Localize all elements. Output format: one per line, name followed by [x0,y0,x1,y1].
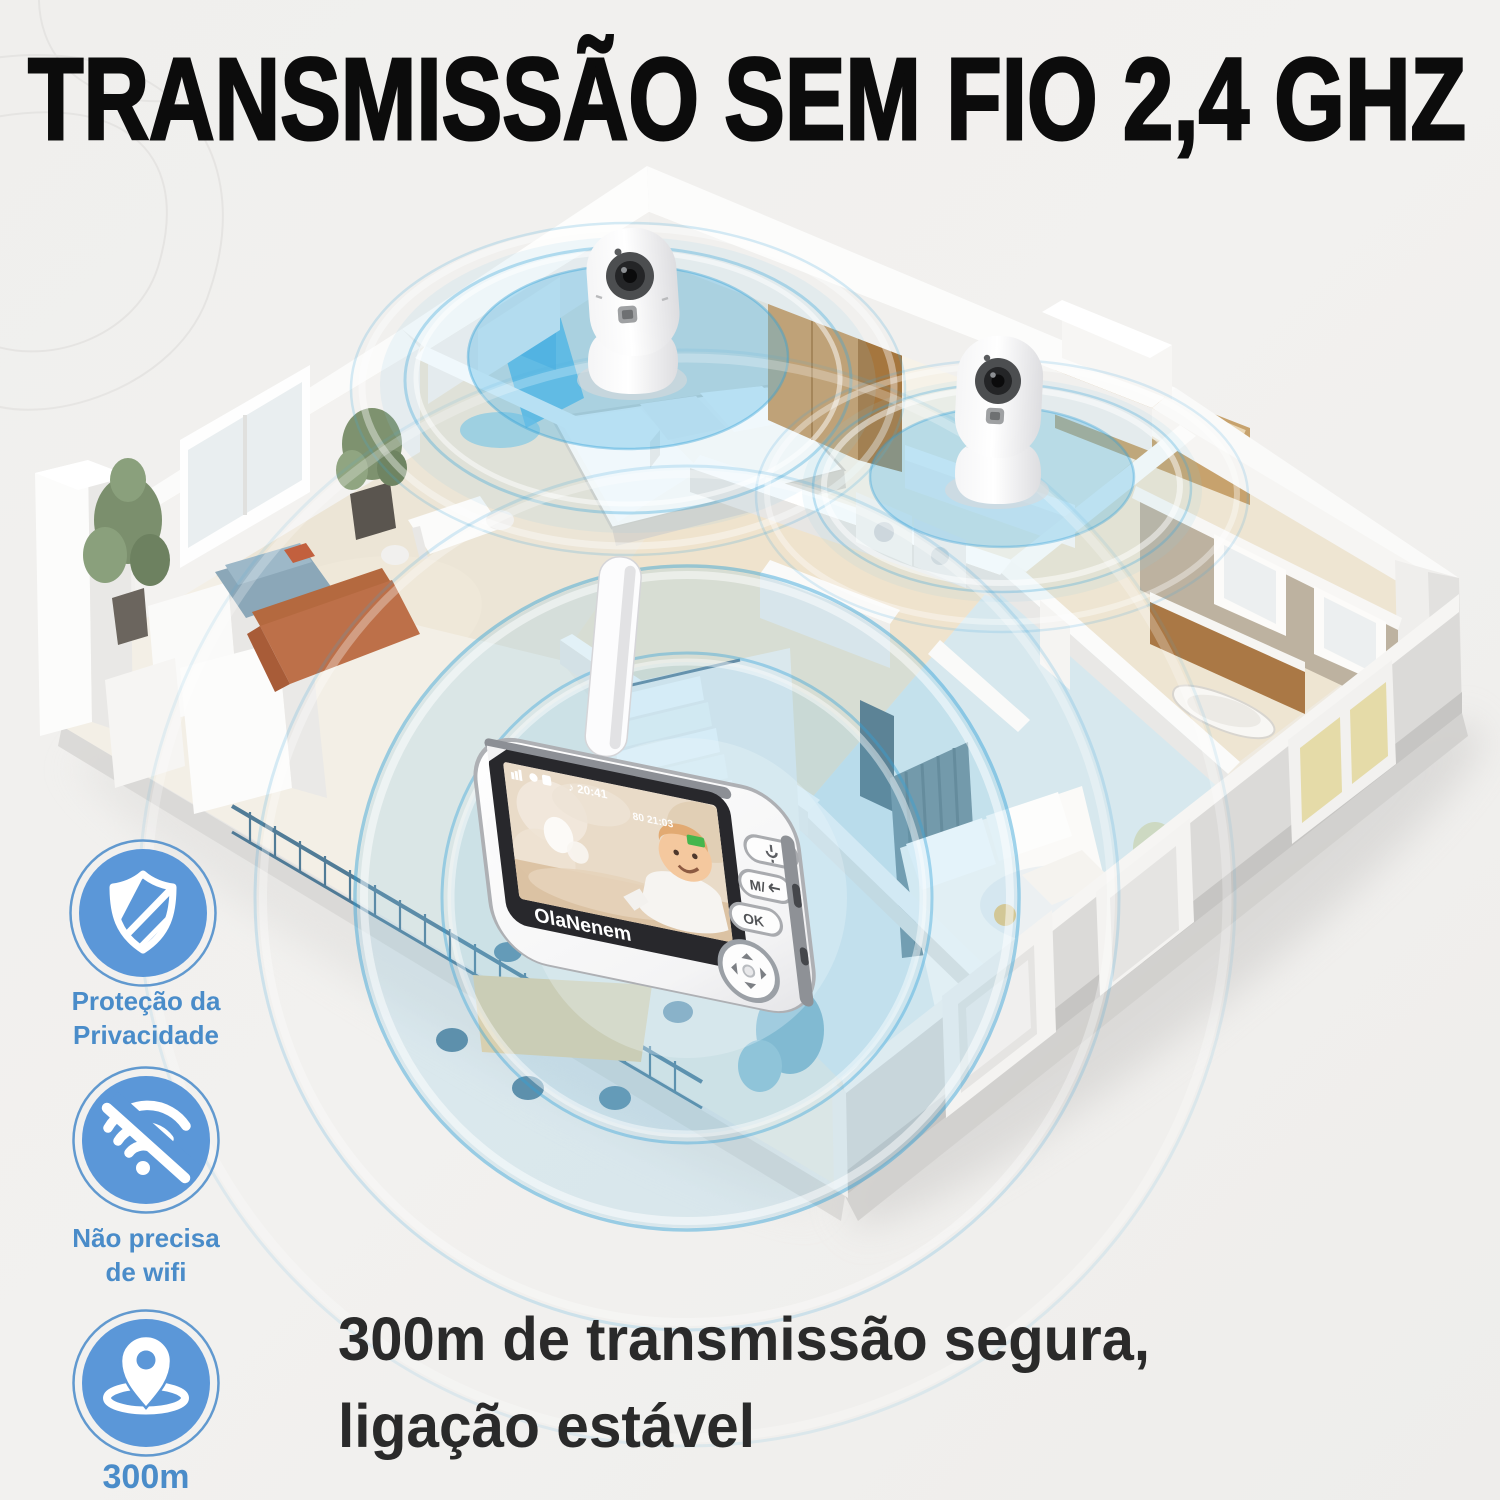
svg-text:Privacidade: Privacidade [73,1020,219,1050]
svg-text:Não precisa: Não precisa [72,1223,220,1253]
svg-text:de wifi: de wifi [106,1257,187,1287]
svg-text:300m: 300m [103,1458,190,1496]
svg-text:300m de transmissão segura,: 300m de transmissão segura, [338,1305,1150,1373]
svg-text:ligação estável: ligação estável [338,1392,755,1460]
svg-text:Proteção da: Proteção da [72,986,221,1016]
svg-text:TRANSMISSÃO SEM FIO 2,4 GHZ: TRANSMISSÃO SEM FIO 2,4 GHZ [28,34,1466,164]
